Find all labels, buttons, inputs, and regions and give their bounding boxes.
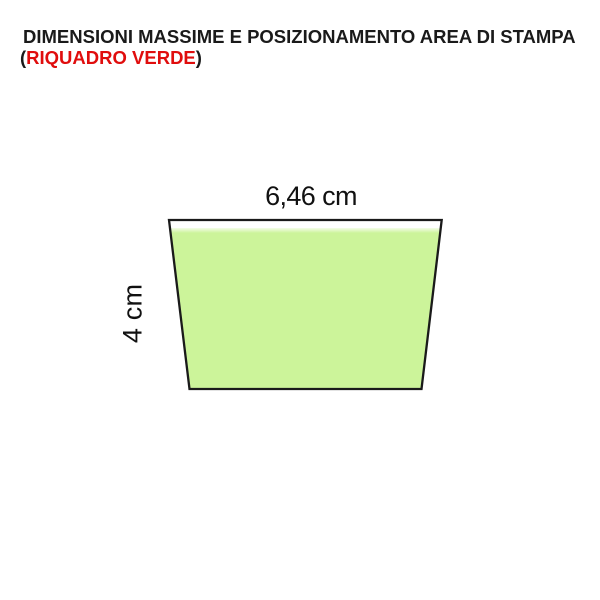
svg-text:4 cm: 4 cm xyxy=(117,284,147,343)
svg-text:6,46 cm: 6,46 cm xyxy=(265,181,357,211)
